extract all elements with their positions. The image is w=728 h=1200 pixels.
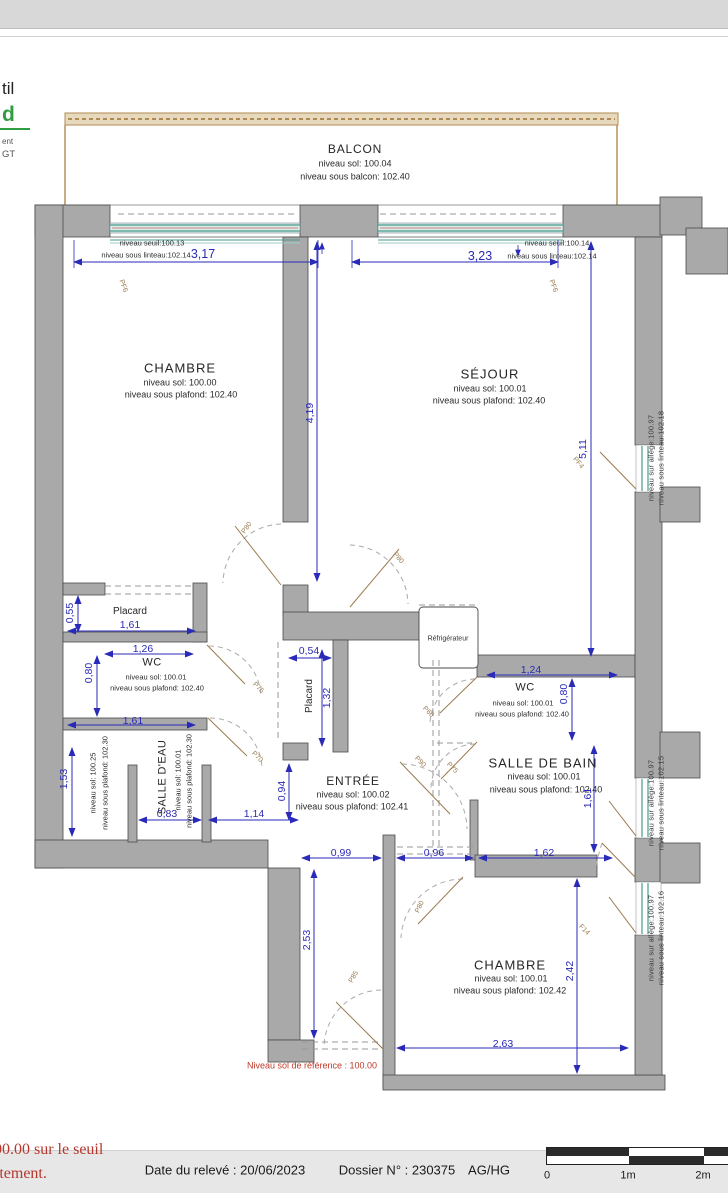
scale-segment — [629, 1156, 704, 1164]
dim-salle-eau-height: 1,53 — [59, 769, 70, 789]
room-wc2-plafond: niveau sous plafond: 102.40 — [475, 710, 569, 718]
room-entree-title: ENTRÉE — [326, 775, 379, 787]
dim-window-right: 3,23 — [468, 250, 492, 263]
dim-corridor-height: 2,53 — [302, 930, 313, 950]
window-right-linteau: niveau sous linteau:102.14 — [507, 252, 596, 260]
note-partial-1: 00.00 sur le seuil — [0, 1142, 103, 1158]
dim-placard2-width: 0,54 — [299, 646, 319, 657]
footer-date: Date du relevé : 20/06/2023 — [145, 1164, 305, 1177]
scale-segment — [547, 1148, 629, 1156]
dim-passage-1: 0,99 — [331, 848, 351, 859]
room-wc1-sol: niveau sol: 100.01 — [126, 673, 187, 681]
level-right-sejour-allege: niveau sur allège:100.97 — [647, 415, 655, 502]
room-wc1-plafond: niveau sous plafond: 102.40 — [110, 684, 204, 692]
level-right-chambre2-linteau: niveau sous linteau:102.16 — [657, 891, 665, 985]
room-chambre1-sol: niveau sol: 100.00 — [143, 379, 216, 388]
salle-eau-gaine-plafond: niveau sous plafond: 102.30 — [101, 736, 109, 830]
dim-chambre2-height: 2,42 — [565, 961, 576, 981]
scale-label-1m: 1m — [620, 1171, 635, 1182]
dim-chambre1-height: 4,19 — [305, 403, 316, 423]
window-left-seuil: niveau seuil:100.13 — [120, 239, 185, 247]
room-chambre2-title: CHAMBRE — [474, 959, 546, 972]
room-wc1-title: WC — [142, 658, 161, 669]
room-wc2-title: WC — [515, 683, 534, 694]
dim-sdb-width: 1,62 — [534, 848, 554, 859]
dim-placard2-height: 1,32 — [322, 688, 333, 708]
window-right-seuil: niveau seuil:100.14 — [525, 239, 590, 247]
window-left-linteau: niveau sous linteau:102.14 — [101, 251, 190, 259]
scale-bar-row-bottom — [547, 1156, 728, 1164]
room-chambre1-title: CHAMBRE — [144, 362, 216, 375]
dim-chambre2-width: 2,63 — [493, 1039, 513, 1050]
dim-sejour-height: 5,11 — [578, 439, 589, 459]
room-placard2-title: Placard — [305, 679, 315, 713]
room-salle-eau-sol: niveau sol: 100.01 — [174, 750, 182, 811]
level-right-sdb-allege: niveau sur allège:100.97 — [647, 760, 655, 847]
room-chambre2-plafond: niveau sous plafond: 102.42 — [454, 987, 567, 996]
room-chambre1-plafond: niveau sous plafond: 102.40 — [125, 391, 238, 400]
room-placard1-title: Placard — [113, 607, 147, 617]
room-wc2-sol: niveau sol: 100.01 — [493, 699, 554, 707]
dim-sdb-height: 1,61 — [583, 788, 594, 808]
scale-segment — [704, 1156, 728, 1164]
footer-dossier: Dossier N° : 230375 — [339, 1164, 455, 1177]
room-sejour-title: SÉJOUR — [461, 368, 520, 381]
room-sdb-sol: niveau sol: 100.01 — [507, 773, 580, 782]
scale-segment — [547, 1156, 629, 1164]
room-entree-sol: niveau sol: 100.02 — [316, 791, 389, 800]
balcony-level-sous: niveau sous balcon: 102.40 — [300, 173, 410, 182]
scale-bar — [546, 1147, 728, 1165]
dim-salle-eau-inner: 0,83 — [157, 809, 177, 820]
room-salle-eau-plafond: niveau sous plafond: 102.30 — [185, 734, 193, 828]
dim-wc1-width: 1,26 — [133, 644, 153, 655]
floorplan-page: til d ent GT — [0, 0, 728, 1200]
scale-segment — [629, 1148, 704, 1156]
dim-placard1-width: 1,61 — [120, 620, 140, 631]
dim-window-left: 3,17 — [191, 248, 215, 261]
room-salle-eau-title: SALLE D'EAU — [158, 740, 169, 814]
note-partial-2: rtement. — [0, 1166, 47, 1182]
level-right-sdb-linteau: niveau sous linteau:102.15 — [657, 756, 665, 850]
scale-label-0: 0 — [544, 1171, 550, 1182]
scale-segment — [704, 1148, 728, 1156]
dim-placard1-height: 0,55 — [65, 603, 76, 623]
room-sdb-title: SALLE DE BAIN — [488, 757, 597, 770]
level-right-sejour-linteau: niveau sous linteau:102.18 — [657, 411, 665, 505]
fridge-label: Réfrigérateur — [428, 636, 469, 643]
dim-wc2-height: 0,80 — [559, 684, 570, 704]
balcony-title: BALCON — [328, 143, 382, 155]
scale-bar-row-top — [547, 1148, 728, 1156]
room-sejour-sol: niveau sol: 100.01 — [453, 385, 526, 394]
footer-authors: AG/HG — [468, 1164, 510, 1177]
dim-entree-height: 0,94 — [277, 781, 288, 801]
balcony-level-sol: niveau sol: 100.04 — [318, 160, 391, 169]
room-entree-plafond: niveau sous plafond: 102.41 — [296, 803, 409, 812]
room-chambre2-sol: niveau sol: 100.01 — [474, 975, 547, 984]
dim-salle-eau-width: 1,61 — [123, 716, 143, 727]
level-right-chambre2-allege: niveau sur allège:100.97 — [647, 895, 655, 982]
note-reference-level: Niveau sol de référence : 100.00 — [247, 1062, 377, 1071]
scale-label-2m: 2m — [695, 1171, 710, 1182]
dim-passage-2: 0,96 — [424, 848, 444, 859]
dim-wc2-width: 1,24 — [521, 665, 541, 676]
dim-salle-eau-passage: 1,14 — [244, 809, 264, 820]
salle-eau-gaine-sol: niveau sol: 100.25 — [89, 753, 97, 814]
dim-wc1-height: 0,80 — [84, 663, 95, 683]
room-sejour-plafond: niveau sous plafond: 102.40 — [433, 397, 546, 406]
